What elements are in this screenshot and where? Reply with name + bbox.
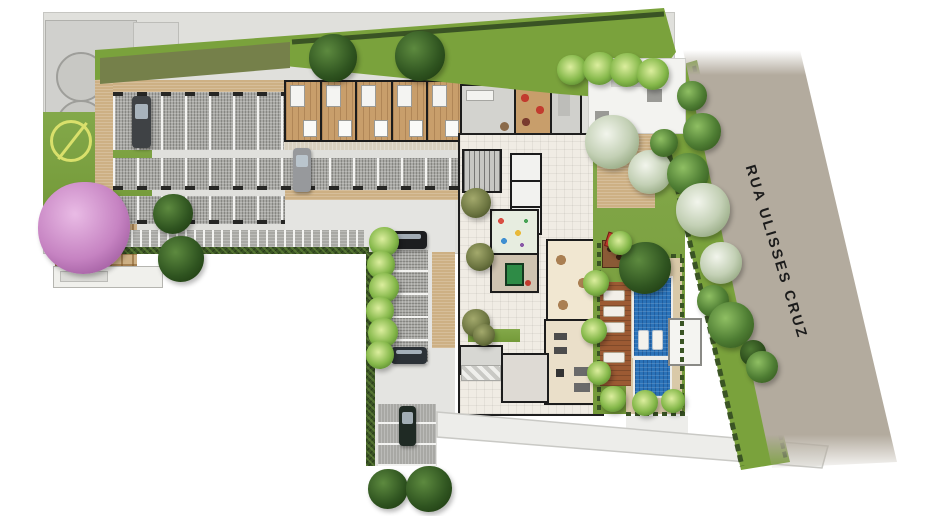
tree-bush-icon [740,340,766,366]
wheel-stops [113,220,285,224]
elevator-cab [512,155,540,180]
kitchen-room [462,86,516,136]
studio-unit [322,82,358,140]
core-garden-pocket [468,329,520,342]
studio-units-row [284,80,464,142]
studio-unit [286,82,322,140]
kids-room [490,209,539,255]
tree-green-icon [697,285,729,317]
paving-patch [626,416,688,444]
walkway-west [95,55,113,195]
stairwell [462,149,502,193]
entry-shed [53,266,163,288]
site-plan-canvas: RUA ULISSES CRUZ [0,0,930,516]
deck-lounger [603,290,625,301]
deck-lounger [603,322,625,333]
studio-unit [393,82,429,140]
studio-unit [357,82,393,140]
pool-support-room [668,318,702,366]
pool-shelf-lounger [638,330,649,350]
parking-column [378,250,428,364]
deck-lounger [603,306,625,317]
pool-hedge-east [680,258,684,416]
tree-silver-icon [700,242,742,284]
walkway-core-west [432,252,455,348]
walkway-top [113,80,285,92]
tree-green-icon [746,351,778,383]
wheel-stops [113,186,462,190]
kids-pool [633,358,672,398]
boundary-hedge-south [113,247,369,254]
service-room-2 [501,353,549,403]
ramp-hatch [461,365,501,381]
elevator-cab [512,182,540,207]
tree-dark-icon [406,466,452,512]
parking-lower [378,404,436,466]
street-surface [683,50,897,468]
utility-pad-small [133,22,179,60]
entrance-canopy [588,58,686,134]
lawn-circle-marking [50,120,92,162]
wheel-stops [113,92,285,96]
tree-dark-icon [368,469,408,509]
studio-unit [428,82,462,140]
tree-green-icon [683,113,721,151]
pool-hedge-top [626,254,682,258]
boundary-hedge-west [366,252,375,466]
deck-lounger [603,352,625,363]
street-name-label: RUA ULISSES CRUZ [735,159,812,347]
common-rooms [460,84,582,138]
pool-shelf-lounger [652,330,663,350]
garden-terrace [597,134,655,208]
support-room [552,86,580,136]
moto-parking-strip [113,230,364,247]
lounge-room [516,86,552,136]
game-room [490,253,539,293]
tree-green-icon [708,302,754,348]
parking-row-a [113,92,285,150]
